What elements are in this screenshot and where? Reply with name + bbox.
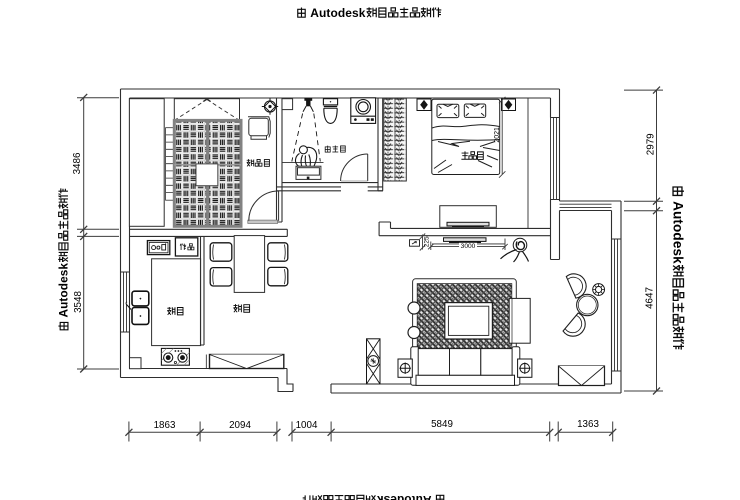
svg-text:3548: 3548: [73, 291, 84, 313]
svg-text:4647: 4647: [645, 287, 656, 309]
svg-text:5849: 5849: [431, 419, 453, 430]
svg-text:2979: 2979: [646, 133, 657, 155]
svg-text:225: 225: [423, 236, 430, 247]
svg-text:2021: 2021: [494, 127, 501, 143]
svg-text:1863: 1863: [154, 420, 176, 431]
svg-text:2094: 2094: [229, 420, 251, 431]
svg-text:3000: 3000: [461, 243, 476, 250]
svg-text:3486: 3486: [72, 152, 83, 174]
svg-text:1363: 1363: [577, 419, 599, 430]
svg-text:1004: 1004: [296, 420, 318, 431]
